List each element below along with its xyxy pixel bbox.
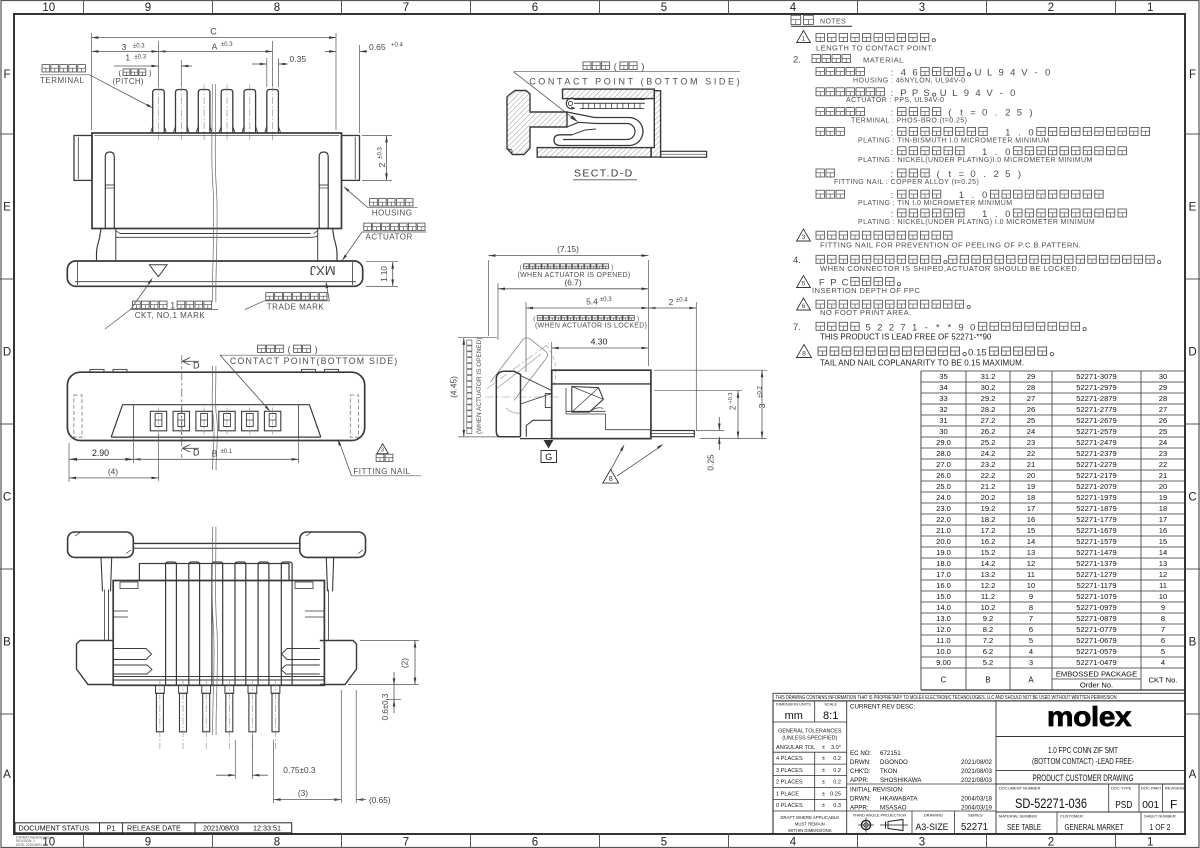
svg-text:17: 17 — [1159, 515, 1167, 524]
svg-text:52271-1779: 52271-1779 — [1076, 515, 1117, 524]
svg-text:4: 4 — [1029, 647, 1033, 656]
svg-text:2: 2 — [1048, 2, 1054, 14]
svg-text:20.0: 20.0 — [936, 537, 951, 546]
svg-text:GENERAL MARKET: GENERAL MARKET — [1065, 823, 1124, 832]
svg-text:1: 1 — [802, 35, 806, 42]
svg-text:(PITCH): (PITCH) — [113, 77, 144, 86]
svg-text:52271-2779: 52271-2779 — [1076, 405, 1117, 414]
svg-text:V: V — [986, 88, 993, 99]
svg-text:21.2: 21.2 — [981, 482, 996, 491]
svg-text:ACTUATOR : PPS, UL94V-0: ACTUATOR : PPS, UL94V-0 — [846, 97, 945, 104]
svg-text:4 PLACES: 4 PLACES — [776, 756, 803, 762]
svg-text:27.2: 27.2 — [981, 416, 996, 425]
svg-text:): ) — [1029, 108, 1032, 119]
svg-text:C: C — [941, 676, 947, 685]
svg-text:±0.2: ±0.2 — [757, 385, 764, 398]
svg-text:U: U — [975, 68, 982, 79]
svg-text:MSASAO: MSASAO — [880, 805, 907, 812]
svg-text:+0.3: +0.3 — [728, 393, 734, 404]
svg-text:CHK'D:: CHK'D: — [850, 768, 871, 775]
svg-text:(7.15): (7.15) — [557, 244, 579, 254]
svg-text:C: C — [3, 492, 11, 504]
svg-text:1 PLACE: 1 PLACE — [776, 791, 799, 797]
svg-text:5.4: 5.4 — [586, 297, 598, 307]
svg-text:2.90: 2.90 — [92, 448, 109, 458]
svg-text:29: 29 — [1027, 372, 1035, 381]
svg-text:12: 12 — [1159, 570, 1167, 579]
svg-text:30.2: 30.2 — [981, 383, 996, 392]
svg-text:14: 14 — [1159, 548, 1167, 557]
svg-text:C: C — [1188, 492, 1196, 504]
svg-text:±: ± — [822, 745, 825, 751]
svg-text:B: B — [985, 676, 990, 685]
svg-text:DOC PART: DOC PART — [1141, 786, 1162, 791]
svg-text:±0.4: ±0.4 — [676, 298, 688, 304]
svg-text:23.0: 23.0 — [936, 504, 951, 513]
svg-text:28: 28 — [1027, 383, 1035, 392]
svg-text:2021/08/02: 2021/08/02 — [961, 759, 993, 766]
svg-text:FITTING NAIL: FITTING NAIL — [353, 467, 410, 476]
svg-text:19: 19 — [1159, 493, 1167, 502]
svg-text:4: 4 — [1010, 68, 1015, 79]
svg-text:A: A — [1028, 676, 1034, 685]
svg-text:±0.3: ±0.3 — [221, 42, 233, 48]
svg-text:0: 0 — [1045, 68, 1050, 79]
svg-text:0.6±0.3: 0.6±0.3 — [381, 693, 390, 720]
svg-text:10.0: 10.0 — [936, 647, 951, 656]
svg-text:4.30: 4.30 — [591, 337, 608, 347]
svg-text:C: C — [210, 27, 217, 37]
svg-text:35: 35 — [939, 372, 947, 381]
svg-text:11: 11 — [1159, 581, 1167, 590]
svg-text:THIS DRAWING CONTAINS INFORMAT: THIS DRAWING CONTAINS INFORMATION THAT I… — [776, 695, 1117, 701]
svg-text:(WHEN ACTUATOR IS LOCKED): (WHEN ACTUATOR IS LOCKED) — [535, 323, 647, 330]
svg-text:3: 3 — [381, 448, 384, 454]
svg-text:NO FOOT PRINT AREA.: NO FOOT PRINT AREA. — [820, 308, 912, 317]
svg-text:SECT.D-D: SECT.D-D — [574, 168, 634, 180]
svg-text:52271-2279: 52271-2279 — [1076, 460, 1117, 469]
svg-text:52271-1879: 52271-1879 — [1076, 504, 1117, 513]
svg-text:52271-2179: 52271-2179 — [1076, 471, 1117, 480]
svg-text:25.0: 25.0 — [936, 482, 951, 491]
svg-text:RELEASE DATE: RELEASE DATE — [127, 824, 181, 833]
svg-text:D: D — [193, 361, 200, 371]
svg-text:D: D — [193, 448, 200, 458]
svg-text:4.: 4. — [793, 255, 801, 266]
svg-text:.: . — [983, 169, 986, 180]
svg-text:B: B — [1189, 637, 1197, 649]
svg-text:+0.4: +0.4 — [391, 43, 404, 49]
svg-text:4: 4 — [790, 2, 797, 14]
svg-text:13: 13 — [1027, 548, 1035, 557]
svg-text:8.2: 8.2 — [983, 625, 994, 634]
svg-text:Order No.: Order No. — [1080, 681, 1113, 690]
svg-text:7: 7 — [1029, 614, 1033, 623]
svg-text:HOUSING : 46NYLON, UL94V-0: HOUSING : 46NYLON, UL94V-0 — [853, 78, 965, 85]
svg-text:5.2: 5.2 — [983, 658, 994, 667]
svg-text:52271-1679: 52271-1679 — [1076, 526, 1117, 535]
svg-text:52271-0979: 52271-0979 — [1076, 603, 1117, 612]
svg-text:2: 2 — [1048, 837, 1054, 848]
svg-text:52271: 52271 — [961, 822, 988, 833]
svg-text:25.2: 25.2 — [981, 438, 996, 447]
svg-text:52271-1979: 52271-1979 — [1076, 493, 1117, 502]
svg-text:V: V — [1021, 68, 1028, 79]
svg-text:20: 20 — [1027, 471, 1035, 480]
svg-text:18.2: 18.2 — [981, 515, 996, 524]
svg-text:2.: 2. — [793, 55, 801, 66]
svg-text:SD-52271-036: SD-52271-036 — [1015, 795, 1087, 811]
svg-text:13: 13 — [1159, 559, 1167, 568]
svg-text:17: 17 — [1027, 504, 1035, 513]
svg-text:5: 5 — [1005, 169, 1010, 180]
svg-text:±0.3: ±0.3 — [133, 44, 145, 50]
svg-text:52271-2379: 52271-2379 — [1076, 449, 1117, 458]
svg-text:29: 29 — [1159, 383, 1167, 392]
svg-text:0 PLACES: 0 PLACES — [776, 803, 803, 809]
svg-text:5: 5 — [1161, 647, 1165, 656]
svg-text:(0.65): (0.65) — [369, 795, 391, 805]
svg-text:22: 22 — [1027, 449, 1035, 458]
svg-text:TAIL AND NAIL COPLANARITY TO B: TAIL AND NAIL COPLANARITY TO BE 0.15 MAX… — [820, 359, 1024, 368]
svg-text:30: 30 — [939, 427, 947, 436]
svg-text:52271-0579: 52271-0579 — [1076, 647, 1117, 656]
svg-text:±: ± — [822, 756, 825, 762]
svg-text:WHEN CONNECTOR IS SHIPED,ACTUA: WHEN CONNECTOR IS SHIPED,ACTUATOR SHOULD… — [820, 264, 1080, 273]
svg-text:±: ± — [822, 791, 825, 797]
svg-text:9: 9 — [145, 2, 151, 14]
svg-text:±: ± — [822, 780, 825, 786]
svg-text:33: 33 — [939, 394, 947, 403]
svg-text:0.15: 0.15 — [968, 347, 987, 358]
svg-text:B: B — [3, 637, 11, 649]
svg-text:27: 27 — [1159, 405, 1167, 414]
svg-text:PLATING : TIN I.0 MICROMETER M: PLATING : TIN I.0 MICROMETER MINIMUM — [858, 200, 1012, 207]
svg-text:CONTACT POINT (BOTTOM SIDE): CONTACT POINT (BOTTOM SIDE) — [529, 77, 742, 87]
svg-text:3: 3 — [802, 234, 806, 241]
svg-text:0.2: 0.2 — [833, 780, 841, 786]
svg-text:1: 1 — [1147, 2, 1153, 14]
svg-text:=: = — [970, 108, 976, 119]
svg-text:23: 23 — [1159, 449, 1167, 458]
svg-text:5: 5 — [802, 280, 806, 287]
svg-text:TERMINAL: TERMINAL — [40, 76, 85, 85]
svg-text:52271-1479: 52271-1479 — [1076, 548, 1117, 557]
svg-text:52271-1379: 52271-1379 — [1076, 559, 1117, 568]
svg-text:2: 2 — [994, 169, 999, 180]
svg-text:24: 24 — [1027, 427, 1035, 436]
svg-text:16.0: 16.0 — [936, 581, 951, 590]
svg-text:CKT No.: CKT No. — [1149, 676, 1178, 685]
svg-text:TKON: TKON — [880, 768, 897, 775]
svg-text:18: 18 — [1159, 504, 1167, 513]
svg-text:12.2: 12.2 — [981, 581, 996, 590]
svg-text:1: 1 — [1147, 837, 1153, 848]
svg-text:GENERAL TOLERANCES: GENERAL TOLERANCES — [778, 729, 842, 735]
svg-text:28.0: 28.0 — [936, 449, 951, 458]
svg-text:REVISION: REVISION — [1165, 786, 1184, 791]
svg-text:DRAFT WHERE APPLICABLE: DRAFT WHERE APPLICABLE — [780, 815, 839, 820]
svg-text:F: F — [3, 69, 10, 81]
svg-text:8: 8 — [274, 837, 280, 848]
svg-text:16: 16 — [1159, 526, 1167, 535]
svg-text:28.2: 28.2 — [981, 405, 996, 414]
svg-text:6: 6 — [532, 2, 538, 14]
svg-text:P1: P1 — [107, 824, 116, 833]
svg-text:DATE: 2020/09/01 W: DATE: 2020/09/01 W — [16, 843, 46, 847]
svg-text:7: 7 — [403, 2, 409, 14]
svg-text:17.2: 17.2 — [981, 526, 996, 535]
svg-text:3.0°: 3.0° — [831, 745, 841, 751]
svg-text:TRADE MARK: TRADE MARK — [267, 303, 325, 312]
svg-text:10: 10 — [1027, 581, 1035, 590]
svg-text:26: 26 — [1159, 416, 1167, 425]
svg-text:3: 3 — [919, 837, 925, 848]
svg-text:1: 1 — [125, 53, 130, 63]
svg-text:L: L — [987, 68, 992, 79]
svg-text:21.0: 21.0 — [936, 526, 951, 535]
svg-text:22: 22 — [1159, 460, 1167, 469]
svg-text:52271-2979: 52271-2979 — [1076, 383, 1117, 392]
svg-text:SCALE: SCALE — [824, 702, 837, 707]
svg-text:3: 3 — [1029, 658, 1033, 667]
svg-text:7.: 7. — [793, 322, 801, 333]
svg-text:28: 28 — [1159, 394, 1167, 403]
svg-text:B: B — [212, 449, 218, 459]
svg-text:APPR:: APPR: — [850, 777, 869, 784]
svg-text:D: D — [3, 347, 11, 359]
svg-text:0.2: 0.2 — [833, 768, 841, 774]
svg-text:1.0 FPC CONN ZIF SMT: 1.0 FPC CONN ZIF SMT — [1048, 746, 1118, 755]
svg-text:CUSTOMER:: CUSTOMER: — [1060, 814, 1084, 819]
svg-text:9: 9 — [145, 837, 151, 848]
svg-text:DOC TYPE: DOC TYPE — [1111, 786, 1132, 791]
svg-text:25: 25 — [1159, 427, 1167, 436]
svg-text:(4): (4) — [108, 467, 118, 477]
svg-text:52271-2579: 52271-2579 — [1076, 427, 1117, 436]
svg-text:2021/08/03: 2021/08/03 — [961, 777, 993, 784]
svg-text:-: - — [1000, 88, 1003, 99]
svg-text:4: 4 — [1161, 658, 1165, 667]
svg-text:DGONDO: DGONDO — [880, 759, 908, 766]
svg-text:21: 21 — [1159, 471, 1167, 480]
svg-text:-: - — [1034, 68, 1037, 79]
svg-text:SHOSHIKAWA: SHOSHIKAWA — [880, 777, 922, 784]
svg-text:11.0: 11.0 — [936, 636, 950, 645]
svg-text:DRWN:: DRWN: — [850, 759, 871, 766]
svg-text:1: 1 — [170, 301, 175, 311]
svg-text:D: D — [1188, 347, 1196, 359]
svg-text:5: 5 — [1017, 108, 1022, 119]
svg-text:23.2: 23.2 — [981, 460, 996, 469]
svg-text:±0.3: ±0.3 — [600, 297, 612, 303]
svg-text:7.2: 7.2 — [983, 636, 994, 645]
svg-text:2021/08/03: 2021/08/03 — [203, 824, 239, 833]
svg-text:(4.45): (4.45) — [449, 376, 459, 398]
svg-text:±: ± — [822, 768, 825, 774]
svg-text:LENGTH TO CONTACT POINT.: LENGTH TO CONTACT POINT. — [816, 44, 934, 53]
svg-text:9.2: 9.2 — [983, 614, 994, 623]
svg-text:(: ( — [520, 265, 522, 271]
svg-text:9: 9 — [999, 68, 1004, 79]
svg-text:SEE TABLE: SEE TABLE — [1007, 823, 1041, 832]
svg-text:±0.3: ±0.3 — [378, 147, 384, 159]
svg-text:0.2: 0.2 — [833, 756, 841, 762]
svg-text:10.2: 10.2 — [981, 603, 996, 612]
svg-text:PRODUCT CUSTOMER DRAWING: PRODUCT CUSTOMER DRAWING — [1033, 773, 1134, 783]
svg-text:19.2: 19.2 — [981, 504, 996, 513]
svg-text:): ) — [611, 265, 613, 271]
svg-text:6.2: 6.2 — [983, 647, 994, 656]
svg-text:9.00: 9.00 — [936, 658, 951, 667]
svg-text:5: 5 — [661, 837, 667, 848]
svg-text:HKAWABATA: HKAWABATA — [880, 796, 918, 803]
svg-text:9: 9 — [1029, 592, 1033, 601]
svg-text:F: F — [1189, 69, 1196, 81]
svg-text:PLATING : NICKEL(UNDER PLATING: PLATING : NICKEL(UNDER PLATING) I.0 MICR… — [858, 219, 1095, 226]
svg-text:8: 8 — [1161, 614, 1165, 623]
svg-text:MUST REMAIN: MUST REMAIN — [795, 822, 825, 827]
svg-text:5: 5 — [1029, 636, 1033, 645]
svg-text:DIMENSION UNITS: DIMENSION UNITS — [776, 702, 811, 707]
svg-text:8: 8 — [802, 350, 806, 357]
svg-text:19.0: 19.0 — [936, 548, 951, 557]
svg-text:672151: 672151 — [880, 750, 901, 757]
svg-text:27.0: 27.0 — [936, 460, 951, 469]
svg-text:(: ( — [288, 345, 291, 355]
svg-text:6: 6 — [1029, 625, 1033, 634]
svg-text:29.2: 29.2 — [981, 394, 996, 403]
svg-text:6: 6 — [1161, 636, 1165, 645]
svg-text:molex: molex — [1047, 702, 1132, 733]
svg-text:26: 26 — [1027, 405, 1035, 414]
svg-text:3 PLACES: 3 PLACES — [776, 768, 803, 774]
svg-text:.: . — [995, 108, 998, 119]
svg-text:15: 15 — [1159, 537, 1167, 546]
svg-text:52271-3079: 52271-3079 — [1076, 372, 1117, 381]
svg-text:mm: mm — [785, 710, 803, 722]
svg-text:A3-SIZE: A3-SIZE — [916, 822, 949, 833]
svg-text:13.2: 13.2 — [981, 570, 996, 579]
svg-text:12: 12 — [1027, 559, 1035, 568]
svg-text:9: 9 — [964, 88, 969, 99]
svg-text:EMBOSSED PACKAGE: EMBOSSED PACKAGE — [1056, 670, 1137, 679]
svg-text:3: 3 — [122, 42, 127, 52]
svg-text:52271-1579: 52271-1579 — [1076, 537, 1117, 546]
svg-text:E: E — [1189, 202, 1197, 214]
svg-text:11.2: 11.2 — [981, 592, 995, 601]
svg-text:THIRD ANGLE PROJECTION: THIRD ANGLE PROJECTION — [853, 813, 907, 818]
svg-text:52271-1079: 52271-1079 — [1076, 592, 1117, 601]
svg-text:14: 14 — [1027, 537, 1035, 546]
svg-text:15.0: 15.0 — [936, 592, 951, 601]
svg-text:23: 23 — [1027, 438, 1035, 447]
svg-text:L: L — [952, 88, 957, 99]
svg-text:6: 6 — [532, 837, 538, 848]
svg-text:7: 7 — [1161, 625, 1165, 634]
svg-text:11: 11 — [1027, 570, 1035, 579]
svg-text:8: 8 — [274, 2, 280, 14]
svg-text:52271-0879: 52271-0879 — [1076, 614, 1117, 623]
svg-text:(2): (2) — [400, 658, 410, 668]
svg-text:0.35: 0.35 — [290, 54, 307, 64]
svg-text:INITIAL REVISION:: INITIAL REVISION: — [850, 787, 904, 794]
svg-text:HOUSING: HOUSING — [372, 209, 413, 218]
svg-text:52271-0679: 52271-0679 — [1076, 636, 1117, 645]
svg-text:0: 0 — [982, 108, 987, 119]
svg-text:14.2: 14.2 — [981, 559, 996, 568]
svg-text:A: A — [3, 769, 11, 781]
svg-text:8: 8 — [1029, 603, 1033, 612]
svg-text:8:1: 8:1 — [823, 710, 838, 722]
svg-text:17.0: 17.0 — [936, 570, 951, 579]
svg-text:SHEET NUMBER: SHEET NUMBER — [1144, 814, 1176, 819]
svg-text:NOTES: NOTES — [820, 19, 846, 26]
svg-text:30: 30 — [1159, 372, 1167, 381]
svg-text:TERMINAL : PHOS-BRO.(t=0.25): TERMINAL : PHOS-BRO.(t=0.25) — [851, 118, 967, 125]
svg-text:CONTACT POINT(BOTTOM SIDE): CONTACT POINT(BOTTOM SIDE) — [230, 356, 399, 366]
svg-text:12.0: 12.0 — [936, 625, 951, 634]
svg-text:A: A — [1189, 769, 1197, 781]
svg-text:0.65: 0.65 — [369, 42, 386, 52]
svg-text:16.2: 16.2 — [981, 537, 996, 546]
svg-text:2: 2 — [1005, 108, 1010, 119]
svg-text:8: 8 — [609, 475, 613, 483]
svg-text:(WHEN ACTUATOR IS OPENED): (WHEN ACTUATOR IS OPENED) — [476, 338, 483, 434]
svg-text:0.75±0.3: 0.75±0.3 — [283, 765, 316, 775]
svg-text:FITTING NAIL FOR PREVENTION OF: FITTING NAIL FOR PREVENTION OF PEELING O… — [820, 240, 1081, 249]
svg-text:52271-1279: 52271-1279 — [1076, 570, 1117, 579]
svg-text:±0.3: ±0.3 — [134, 54, 146, 60]
svg-text:24.2: 24.2 — [981, 449, 996, 458]
svg-text:31.2: 31.2 — [981, 372, 996, 381]
svg-text:16: 16 — [1027, 515, 1035, 524]
svg-text:INSERTION DEPTH OF FPC: INSERTION DEPTH OF FPC — [812, 286, 920, 295]
svg-text:27: 27 — [1027, 394, 1035, 403]
svg-text:34: 34 — [939, 383, 947, 392]
svg-text:52271-0779: 52271-0779 — [1076, 625, 1117, 634]
svg-text:0.3: 0.3 — [833, 803, 841, 809]
svg-text:2 PLACES: 2 PLACES — [776, 780, 803, 786]
svg-text:26.0: 26.0 — [936, 471, 951, 480]
svg-text:A: A — [212, 42, 218, 52]
svg-text:(: ( — [614, 62, 617, 72]
svg-text:52271-2479: 52271-2479 — [1076, 438, 1117, 447]
svg-text:1 OF 2: 1 OF 2 — [1150, 823, 1171, 832]
svg-text:(BOTTOM CONTACT) -LEAD FREE-: (BOTTOM CONTACT) -LEAD FREE- — [1032, 757, 1134, 766]
svg-text:±: ± — [822, 803, 825, 809]
svg-text:3: 3 — [757, 403, 767, 408]
svg-text:24.0: 24.0 — [936, 493, 951, 502]
svg-text:25: 25 — [1027, 416, 1035, 425]
svg-text:DOCUMENT NUMBER: DOCUMENT NUMBER — [999, 786, 1041, 791]
svg-text:001: 001 — [1142, 799, 1159, 811]
svg-text:5: 5 — [661, 2, 667, 14]
svg-text:14.0: 14.0 — [936, 603, 951, 612]
svg-text:(UNLESS SPECIFIED): (UNLESS SPECIFIED) — [782, 736, 837, 742]
svg-text:7: 7 — [403, 837, 409, 848]
svg-text:DRWN:: DRWN: — [850, 796, 871, 803]
svg-text:F: F — [1170, 798, 1177, 812]
svg-text:(6.7): (6.7) — [564, 278, 581, 288]
svg-text:CKT, NO,1 MARK: CKT, NO,1 MARK — [135, 311, 206, 320]
svg-text:MXJ: MXJ — [310, 263, 336, 278]
svg-text:THIS PRODUCT IS LEAD FREE OF 5: THIS PRODUCT IS LEAD FREE OF 52271-**90 — [820, 332, 992, 341]
svg-text:MATERIAL: MATERIAL — [863, 56, 904, 65]
svg-text:MATERIAL NUMBER: MATERIAL NUMBER — [999, 814, 1037, 819]
svg-text:SERIES: SERIES — [968, 813, 983, 818]
svg-text:4: 4 — [975, 88, 980, 99]
